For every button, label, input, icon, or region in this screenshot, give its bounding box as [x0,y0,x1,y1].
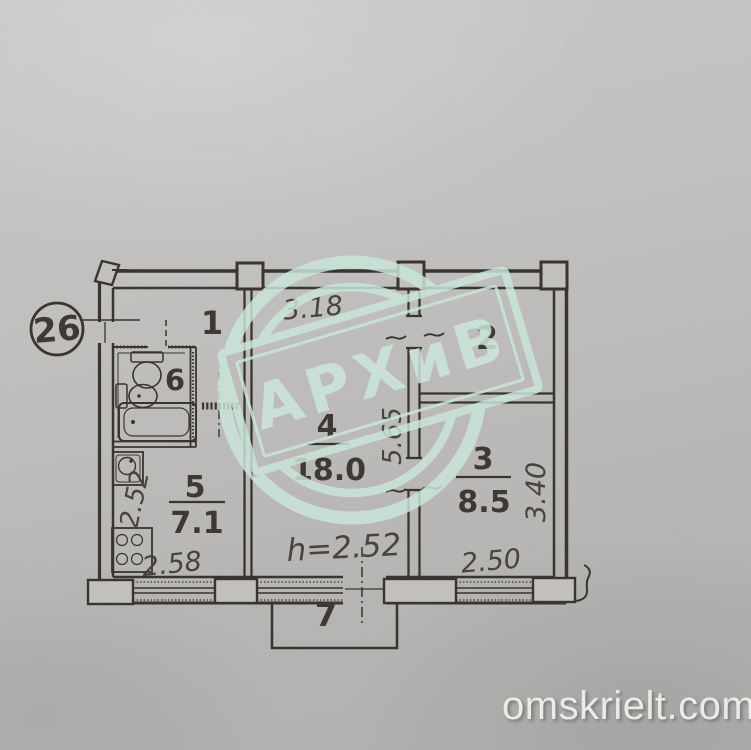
floor-plan-drawing: 26 1 2 6 7 4 18.0 5 7.1 3 8.5 3.18 5.65 … [0,0,751,750]
site-watermark: omskrielt.com [502,684,742,729]
paper-grain [0,0,751,750]
scanned-paper: 26 1 2 6 7 4 18.0 5 7.1 3 8.5 3.18 5.65 … [0,0,751,750]
